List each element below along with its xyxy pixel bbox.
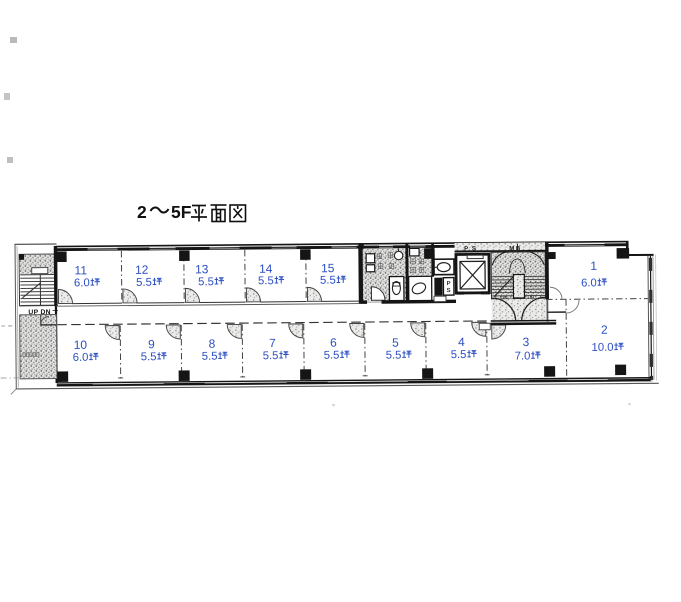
svg-text:5F: 5F (171, 202, 192, 222)
svg-text:1: 1 (590, 259, 597, 273)
svg-text:14: 14 (259, 262, 273, 276)
svg-text:2: 2 (137, 202, 147, 222)
svg-text:11: 11 (74, 263, 87, 277)
svg-text:6.0: 6.0 (74, 277, 90, 289)
svg-text:5.5: 5.5 (324, 350, 340, 362)
svg-text:5.5: 5.5 (198, 276, 214, 288)
svg-text:10.0: 10.0 (591, 342, 613, 354)
svg-text:5.5: 5.5 (136, 277, 152, 289)
svg-text:12: 12 (135, 263, 149, 277)
svg-text:15: 15 (321, 261, 335, 275)
svg-text:5.5: 5.5 (320, 275, 336, 287)
svg-text:13: 13 (195, 262, 209, 276)
svg-text:7.0: 7.0 (515, 350, 531, 362)
svg-text:5: 5 (392, 336, 399, 350)
svg-text:7: 7 (269, 336, 276, 350)
svg-text:9: 9 (148, 337, 155, 351)
svg-text:6.0: 6.0 (73, 352, 89, 364)
svg-text:8: 8 (208, 337, 215, 351)
svg-text:5.5: 5.5 (263, 350, 279, 362)
svg-text:2: 2 (601, 323, 608, 337)
svg-text:5.5: 5.5 (451, 349, 467, 361)
svg-text:10: 10 (74, 338, 88, 352)
svg-text:5.5: 5.5 (202, 351, 218, 363)
svg-text:5.5: 5.5 (258, 275, 274, 287)
svg-text:4: 4 (458, 335, 465, 349)
svg-text:6.0: 6.0 (581, 277, 597, 289)
svg-text:P: P (447, 281, 451, 287)
svg-text:5.5: 5.5 (386, 350, 402, 362)
svg-text:6: 6 (330, 336, 337, 350)
svg-text:3: 3 (522, 335, 529, 349)
svg-text:S: S (447, 288, 451, 294)
svg-text:5.5: 5.5 (141, 351, 157, 363)
